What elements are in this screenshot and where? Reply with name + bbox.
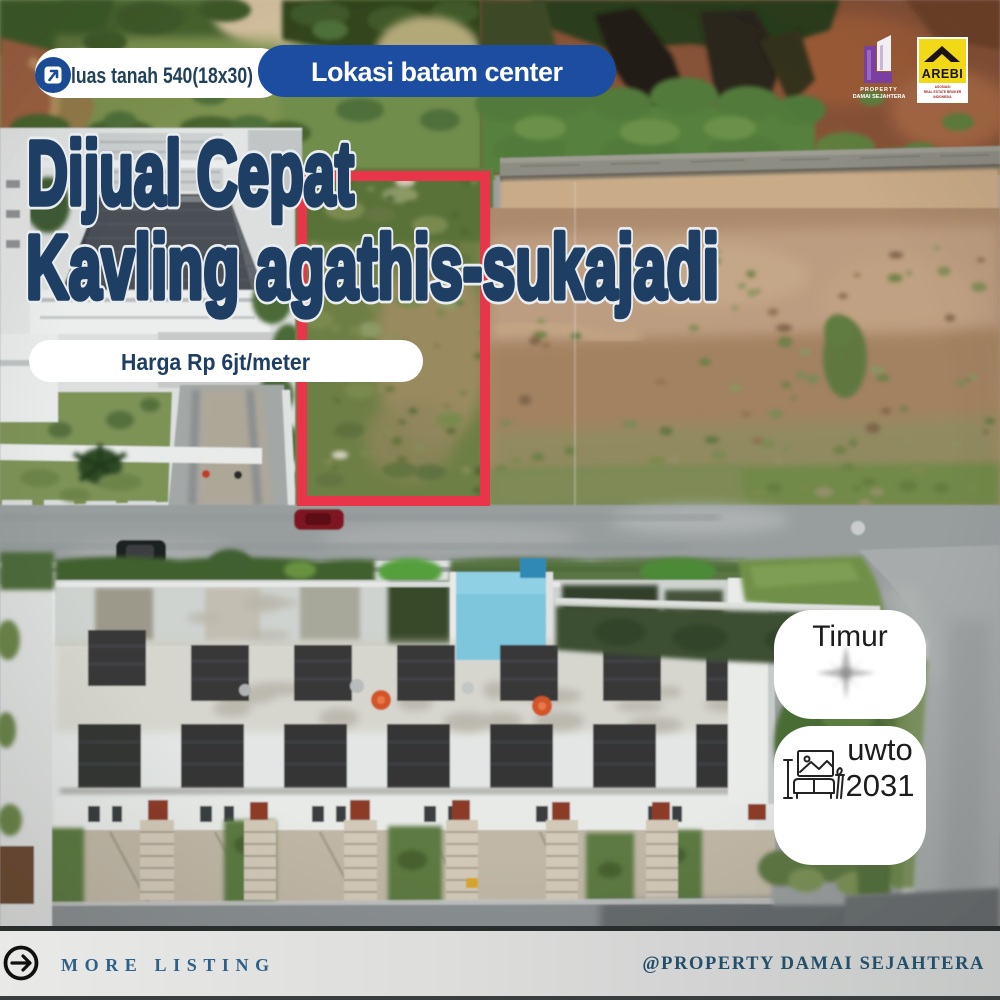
svg-text:ASOSIASI: ASOSIASI: [935, 85, 951, 89]
svg-text:DAMAI SEJAHTERA: DAMAI SEJAHTERA: [853, 94, 906, 100]
svg-text:@PROPERTY DAMAI SEJAHTERA: @PROPERTY DAMAI SEJAHTERA: [642, 954, 985, 974]
svg-text:2031: 2031: [846, 768, 915, 803]
svg-text:INDONESIA: INDONESIA: [933, 95, 952, 99]
svg-text:Timur: Timur: [812, 620, 888, 653]
svg-text:REAL ESTATE BROKER: REAL ESTATE BROKER: [924, 90, 962, 94]
svg-text:PROPERTY: PROPERTY: [860, 87, 897, 93]
svg-text:AREBI: AREBI: [922, 67, 963, 81]
svg-text:Harga Rp 6jt/meter: Harga Rp 6jt/meter: [121, 349, 310, 375]
svg-text:MORE LISTING: MORE LISTING: [61, 955, 276, 975]
svg-text:Lokasi batam center: Lokasi batam center: [311, 57, 563, 87]
svg-text:Kavling agathis-sukajadi: Kavling agathis-sukajadi: [26, 218, 719, 318]
svg-text:Dijual Cepat: Dijual Cepat: [27, 124, 354, 224]
svg-text:uwto: uwto: [847, 732, 912, 767]
svg-text:luas tanah 540(18x30): luas tanah 540(18x30): [71, 63, 253, 88]
